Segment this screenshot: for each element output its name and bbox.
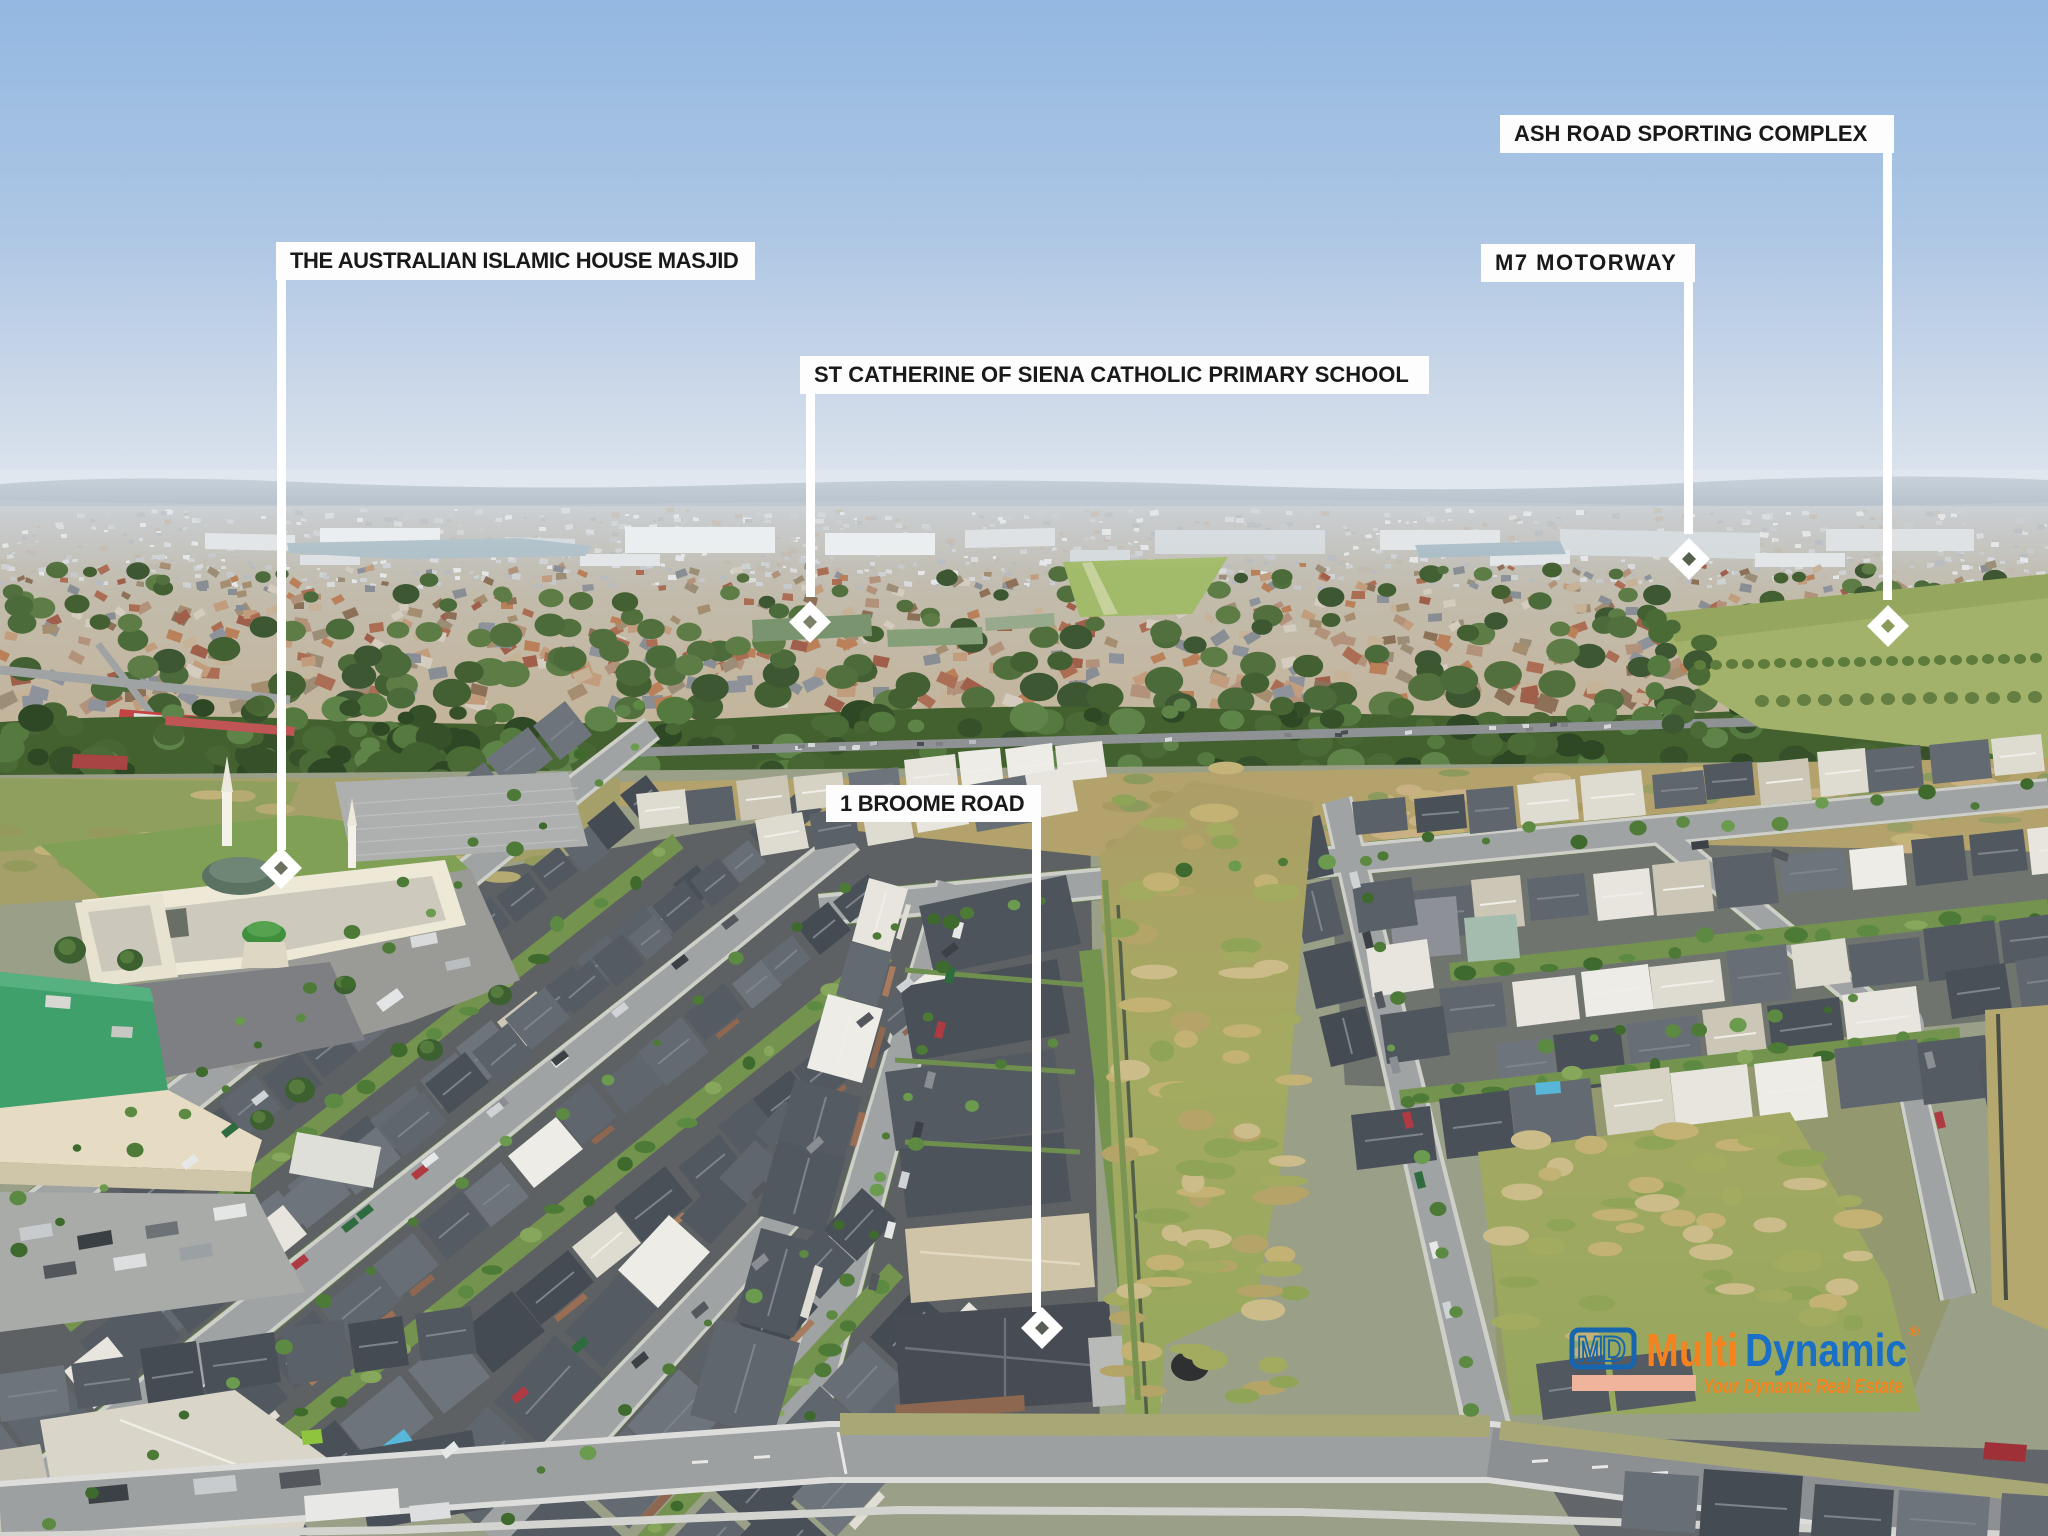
svg-text:Dynamic: Dynamic [1745, 1324, 1907, 1376]
svg-text:®: ® [1909, 1323, 1920, 1339]
svg-text:Your Dynamic Real Estate: Your Dynamic Real Estate [1703, 1376, 1903, 1398]
svg-text:D: D [1602, 1330, 1626, 1369]
svg-text:Multi: Multi [1646, 1324, 1738, 1376]
svg-text:M: M [1577, 1330, 1603, 1369]
